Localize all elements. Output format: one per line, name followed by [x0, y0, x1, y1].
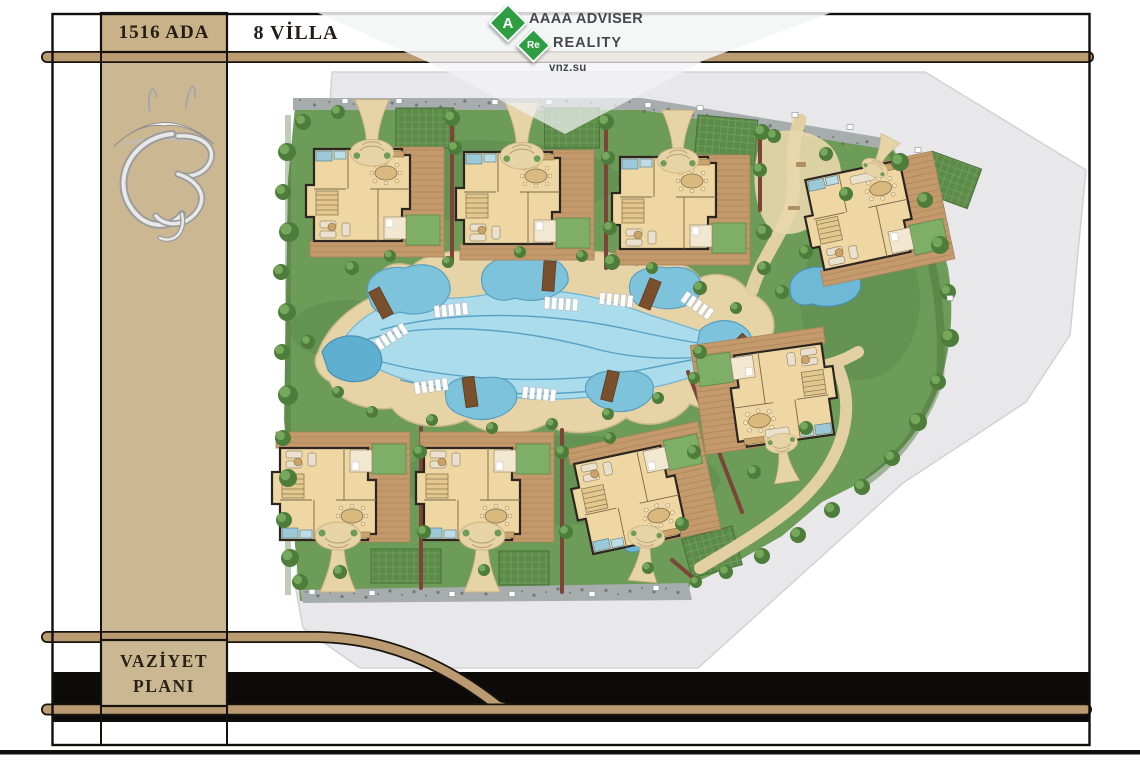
tree [941, 329, 959, 347]
sun-lounger [536, 388, 542, 400]
lawn-panel [499, 551, 549, 585]
tree [775, 285, 789, 299]
site-plan-page: A Re AAAA ADVISER REALITY vnz.su 1516 AD… [0, 0, 1140, 760]
tree [747, 465, 761, 479]
gravel-dot [305, 591, 307, 593]
tree [278, 385, 298, 405]
tree [546, 418, 558, 430]
gate-post [697, 106, 703, 111]
tree [690, 576, 702, 588]
page-bottom-rule [0, 750, 1140, 755]
gate-post [509, 592, 515, 597]
sun-lounger [543, 388, 549, 400]
tree [799, 245, 813, 259]
tree [675, 517, 689, 531]
plan-title: VAZİYET PLANI [101, 648, 227, 700]
gravel-dot [556, 587, 559, 590]
tree [448, 141, 462, 155]
gravel-dot [641, 587, 643, 589]
tree [753, 163, 767, 177]
gate-post [653, 586, 659, 591]
tree [688, 372, 700, 384]
gate-post [492, 100, 498, 105]
gate-post [589, 592, 595, 597]
gravel-dot [604, 589, 607, 592]
gravel-dot [412, 590, 415, 593]
gate-post [309, 590, 315, 595]
gate-post [947, 296, 953, 301]
gravel-dot [832, 136, 834, 138]
tree [332, 386, 344, 398]
sun-lounger [606, 293, 612, 305]
block-number-label: 1516 ADA [101, 14, 227, 52]
gravel-dot [569, 592, 571, 594]
tree [384, 250, 396, 262]
sun-lounger [441, 305, 447, 317]
tree [555, 445, 569, 459]
tree [275, 184, 291, 200]
watermark-line-3: vnz.su [549, 62, 587, 74]
tree [730, 302, 742, 314]
sun-lounger [551, 297, 557, 309]
gate-post [342, 99, 348, 104]
sun-lounger [620, 294, 626, 306]
gravel-dot [425, 101, 427, 103]
villa-count-label: 8 VİLLA [230, 14, 362, 52]
gravel-dot [643, 110, 646, 113]
tree [931, 236, 949, 254]
gravel-dot [460, 592, 463, 595]
tree [274, 344, 290, 360]
tree [604, 254, 620, 270]
tree [652, 392, 664, 404]
gravel-dot [454, 103, 456, 105]
gravel-dot [665, 588, 667, 590]
tree [478, 564, 490, 576]
tree [767, 129, 781, 143]
watermark-line-1: AAAA ADVISER [529, 11, 643, 27]
tree [273, 264, 289, 280]
gravel-dot [436, 591, 439, 594]
gravel-dot [676, 591, 679, 594]
gravel-dot [478, 105, 480, 107]
gravel-dot [425, 595, 427, 597]
gravel-dot [484, 592, 487, 595]
sun-lounger [613, 294, 619, 306]
gravel-dot [353, 592, 355, 594]
tree [909, 413, 927, 431]
tree [331, 105, 345, 119]
tree [839, 187, 853, 201]
plan-title-line1: VAZİYET [120, 649, 208, 674]
plan-title-line2: PLANI [133, 674, 195, 699]
gravel-dot [628, 590, 631, 593]
tree [486, 422, 498, 434]
gravel-dot [532, 594, 535, 597]
sun-lounger [462, 302, 468, 314]
tree [281, 549, 299, 567]
tree [295, 114, 311, 130]
tree [276, 512, 292, 528]
gravel-dot [521, 590, 523, 592]
gate-post [369, 591, 375, 596]
tree [514, 246, 526, 258]
gravel-dot [299, 99, 301, 101]
gravel-dot [388, 589, 391, 592]
tree [756, 224, 772, 240]
sun-lounger [565, 298, 571, 310]
gate-post [449, 592, 455, 597]
tree [279, 222, 299, 242]
sun-lounger [544, 297, 550, 309]
tree [687, 445, 701, 459]
watermark-line-2: REALITY [553, 35, 622, 51]
tree [824, 502, 840, 518]
tree [345, 261, 359, 275]
tree [693, 345, 707, 359]
gravel-dot [391, 101, 394, 104]
sidebar-column [101, 13, 227, 706]
gravel-dot [377, 593, 379, 595]
sun-lounger [599, 292, 605, 304]
tree [646, 262, 658, 274]
gravel-dot [841, 142, 844, 145]
tree [279, 469, 297, 487]
sun-lounger [529, 387, 535, 399]
gravel-dot [580, 588, 583, 591]
tree [854, 479, 870, 495]
gravel-dot [340, 595, 343, 598]
tree [278, 303, 296, 321]
lawn-panel [371, 549, 441, 583]
tree [754, 548, 770, 564]
gravel-dot [629, 101, 631, 103]
gravel-dot [463, 99, 466, 102]
sun-lounger [550, 389, 556, 401]
gravel-dot [316, 594, 319, 597]
gravel-dot [653, 109, 655, 111]
tree [602, 408, 614, 420]
gravel-dot [328, 101, 330, 103]
gate-post [396, 99, 402, 104]
sun-lounger [522, 386, 528, 398]
gravel-dot [364, 596, 367, 599]
tree [598, 114, 614, 130]
tree [757, 261, 771, 275]
gravel-dot [856, 142, 858, 144]
tree [603, 221, 617, 235]
tree [426, 414, 438, 426]
gate-post [915, 148, 921, 153]
badge-re-letter: Re [527, 40, 540, 51]
sun-lounger [572, 299, 578, 311]
tree [891, 153, 909, 171]
sun-lounger [627, 295, 633, 307]
gravel-dot [401, 594, 403, 596]
gravel-dot [617, 593, 619, 595]
tree [790, 527, 806, 543]
tree [301, 335, 315, 349]
gravel-dot [352, 103, 354, 105]
gravel-dot [313, 103, 316, 106]
tree [884, 450, 900, 466]
tree [413, 445, 427, 459]
gravel-dot [545, 591, 547, 593]
gate-post [792, 113, 798, 118]
pool-bridge [542, 261, 556, 292]
gravel-dot [865, 140, 868, 143]
tree [442, 256, 454, 268]
tree [917, 192, 933, 208]
tree [576, 250, 588, 262]
tree [642, 562, 654, 574]
gate-post [847, 125, 853, 130]
tree [559, 525, 573, 539]
villa-unit [690, 326, 842, 454]
sun-lounger [558, 298, 564, 310]
tree [366, 406, 378, 418]
tree [693, 281, 707, 295]
gate-post [645, 103, 651, 108]
lounger-row [544, 297, 578, 311]
tree [292, 574, 308, 590]
tree [799, 421, 813, 435]
sun-lounger [448, 304, 454, 316]
badge-a-letter: A [503, 15, 514, 32]
tree [601, 151, 615, 165]
gravel-dot [415, 103, 418, 106]
sun-lounger [434, 305, 440, 317]
sun-lounger [455, 303, 461, 315]
tree [930, 374, 946, 390]
gravel-dot [769, 124, 772, 127]
gravel-dot [487, 101, 490, 104]
tree [444, 110, 460, 126]
tree [333, 565, 347, 579]
tree [719, 565, 733, 579]
tree [819, 147, 833, 161]
tree [275, 430, 291, 446]
tree [417, 525, 431, 539]
tree [278, 143, 296, 161]
tree [604, 432, 616, 444]
